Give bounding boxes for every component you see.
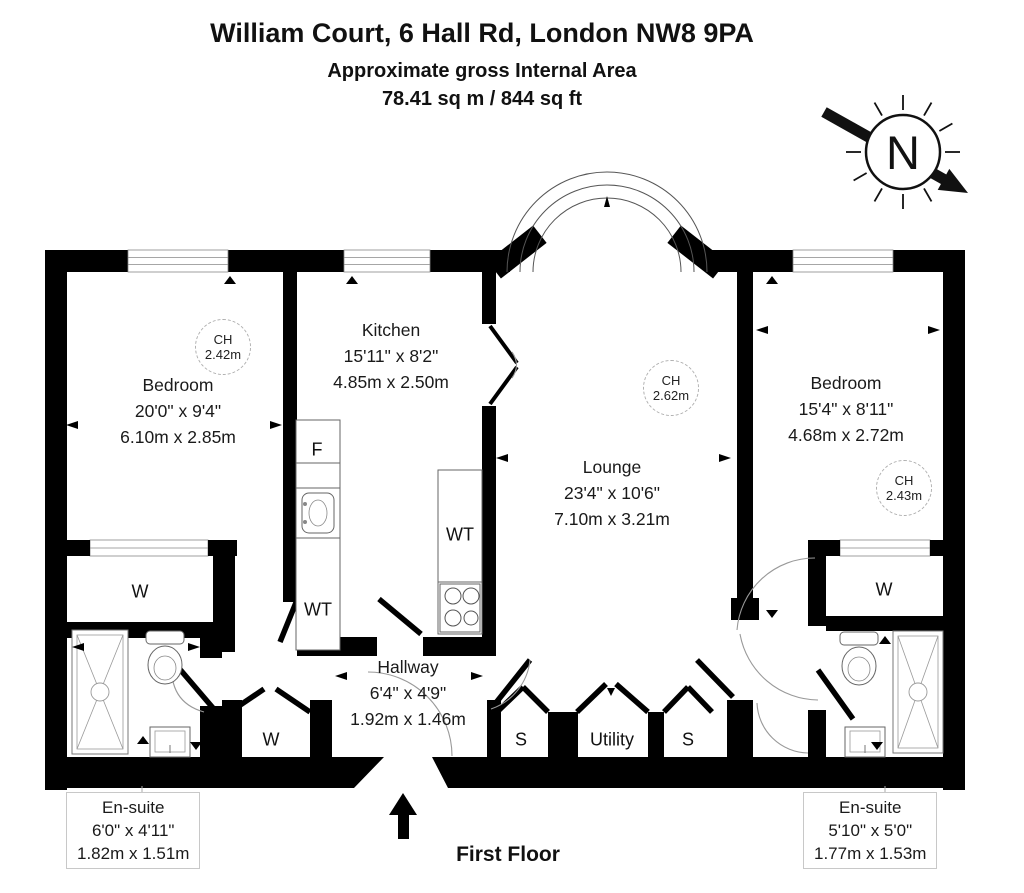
callout-ensuite-left: En-suite 6'0" x 4'11" 1.82m x 1.51m <box>66 792 200 869</box>
compass-north-label: N <box>886 126 920 179</box>
ensuite-left-fixtures <box>72 630 190 757</box>
room-name: En-suite <box>814 796 926 819</box>
room-dimensions-metric: 4.85m x 2.50m <box>333 369 449 395</box>
ch-label: CH <box>214 332 233 347</box>
room-name: Bedroom <box>788 370 904 396</box>
fixture-label-store-left: S <box>515 730 527 751</box>
room-name: Kitchen <box>333 317 449 343</box>
wardrobe-front-right <box>840 540 930 556</box>
room-dimensions-metric: 4.68m x 2.72m <box>788 422 904 448</box>
ceiling-height-badge-bedroom-right: CH 2.43m <box>876 460 932 516</box>
ch-value: 2.42m <box>205 347 241 362</box>
ceiling-height-badge-lounge: CH 2.62m <box>643 360 699 416</box>
floorplan-page: William Court, 6 Hall Rd, London NW8 9PA… <box>0 0 1024 893</box>
window-bedroom-right <box>793 250 893 272</box>
room-dimensions-imperial: 20'0" x 9'4" <box>120 398 236 424</box>
room-label-kitchen: Kitchen 15'11" x 8'2" 4.85m x 2.50m <box>333 317 449 395</box>
window-kitchen <box>344 250 430 272</box>
bay-window-arch <box>507 172 707 272</box>
ch-label: CH <box>895 473 914 488</box>
room-dimensions-metric: 6.10m x 2.85m <box>120 424 236 450</box>
room-name: En-suite <box>77 796 189 819</box>
room-dimensions-metric: 1.77m x 1.53m <box>814 842 926 865</box>
room-name: Bedroom <box>120 372 236 398</box>
room-dimensions-imperial: 5'10" x 5'0" <box>814 819 926 842</box>
fixture-label-wardrobe-left: W <box>132 582 149 603</box>
interior-walls <box>45 272 943 758</box>
window-bedroom-left <box>128 250 228 272</box>
basin-left <box>150 727 190 757</box>
fixture-label-wardrobe-right: W <box>876 580 893 601</box>
room-label-lounge: Lounge 23'4" x 10'6" 7.10m x 3.21m <box>554 454 670 532</box>
callout-ensuite-right: En-suite 5'10" x 5'0" 1.77m x 1.53m <box>803 792 937 869</box>
room-name: Lounge <box>554 454 670 480</box>
room-dimensions-imperial: 6'0" x 4'11" <box>77 819 189 842</box>
stove <box>440 584 480 632</box>
room-dimensions-metric: 7.10m x 3.21m <box>554 506 670 532</box>
toilet-left <box>146 631 184 684</box>
room-dimensions-imperial: 6'4" x 4'9" <box>350 680 466 706</box>
compass-rose: N <box>824 95 968 209</box>
shower-right <box>893 631 943 753</box>
room-label-hallway: Hallway 6'4" x 4'9" 1.92m x 1.46m <box>350 654 466 732</box>
fixture-label-utility: Utility <box>590 730 634 751</box>
fixture-label-fridge: F <box>312 440 323 461</box>
fixture-label-store-right: S <box>682 730 694 751</box>
room-dimensions-metric: 1.92m x 1.46m <box>350 706 466 732</box>
fixture-label-closet-hall: W <box>263 730 280 751</box>
ch-label: CH <box>662 373 681 388</box>
ch-value: 2.43m <box>886 488 922 503</box>
wardrobe-front-left <box>90 540 208 556</box>
kitchen-sink <box>302 493 334 533</box>
room-label-bedroom-right: Bedroom 15'4" x 8'11" 4.68m x 2.72m <box>788 370 904 448</box>
dimension-arrows <box>66 196 940 750</box>
room-name: Hallway <box>350 654 466 680</box>
room-dimensions-imperial: 15'4" x 8'11" <box>788 396 904 422</box>
room-dimensions-imperial: 23'4" x 10'6" <box>554 480 670 506</box>
first-floor-label: First Floor <box>456 843 560 867</box>
ensuite-right-fixtures <box>840 631 943 757</box>
fixture-label-wt-right: WT <box>446 525 474 546</box>
ceiling-height-badge-bedroom-left: CH 2.42m <box>195 319 251 375</box>
entrance-arrow <box>389 793 417 839</box>
fixture-label-wt-left: WT <box>304 600 332 621</box>
toilet-right <box>840 632 878 685</box>
room-dimensions-imperial: 15'11" x 8'2" <box>333 343 449 369</box>
room-label-bedroom-left: Bedroom 20'0" x 9'4" 6.10m x 2.85m <box>120 372 236 450</box>
ch-value: 2.62m <box>653 388 689 403</box>
room-dimensions-metric: 1.82m x 1.51m <box>77 842 189 865</box>
